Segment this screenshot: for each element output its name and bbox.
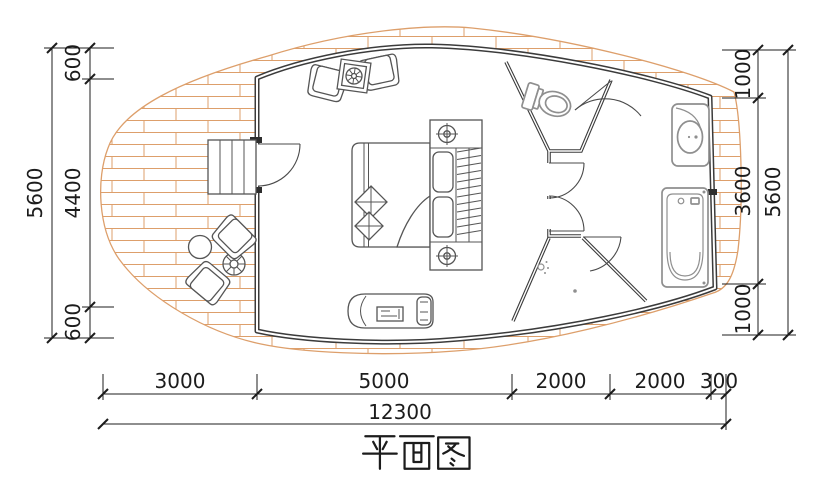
- glyph-tu: [438, 437, 469, 468]
- glyph-mian: [400, 436, 434, 468]
- pillow-1: [433, 152, 453, 192]
- entry-stairs: [208, 140, 256, 194]
- deck-round-table: [189, 236, 212, 259]
- dim-bottom-seg-3: 2000: [536, 369, 587, 393]
- dim-left-overall: 5600: [23, 168, 47, 219]
- dim-left-seg-1: 600: [61, 44, 85, 82]
- dim-right-seg-1: 1000: [731, 49, 755, 100]
- vanity-sink: [672, 104, 709, 166]
- dim-right-seg-2: 3600: [731, 166, 755, 217]
- dim-right-overall: 5600: [761, 167, 785, 218]
- chaise-lounge: [348, 294, 433, 328]
- dimension-chain-bottom: 3000 5000 2000 2000 300 12300: [98, 369, 738, 430]
- dim-bottom-seg-1: 3000: [155, 369, 206, 393]
- bed: [352, 143, 430, 247]
- dim-left-seg-3: 600: [61, 303, 85, 341]
- dim-bottom-seg-5: 300: [700, 369, 738, 393]
- floor-plan-page: 5600 600 4400 600 1000 3600 1000 5600 30…: [0, 0, 837, 496]
- bathtub: [662, 188, 708, 287]
- drawing-title-glyphs: [363, 436, 469, 468]
- pillow-2: [433, 197, 453, 237]
- headboard-unit: [430, 120, 482, 270]
- floor-drain: [573, 289, 577, 293]
- dim-bottom-seg-4: 2000: [635, 369, 686, 393]
- dim-right-seg-3: 1000: [731, 284, 755, 335]
- bathroom-wall-post: [708, 189, 717, 195]
- dim-left-seg-2: 4400: [61, 168, 85, 219]
- dim-bottom-overall: 12300: [368, 400, 432, 424]
- floor-plan-canvas: 5600 600 4400 600 1000 3600 1000 5600 30…: [0, 0, 837, 496]
- dim-bottom-seg-2: 5000: [359, 369, 410, 393]
- side-table: [337, 59, 371, 93]
- glyph-ping: [363, 436, 397, 468]
- dimension-chain-right: 1000 3600 1000 5600: [722, 45, 796, 340]
